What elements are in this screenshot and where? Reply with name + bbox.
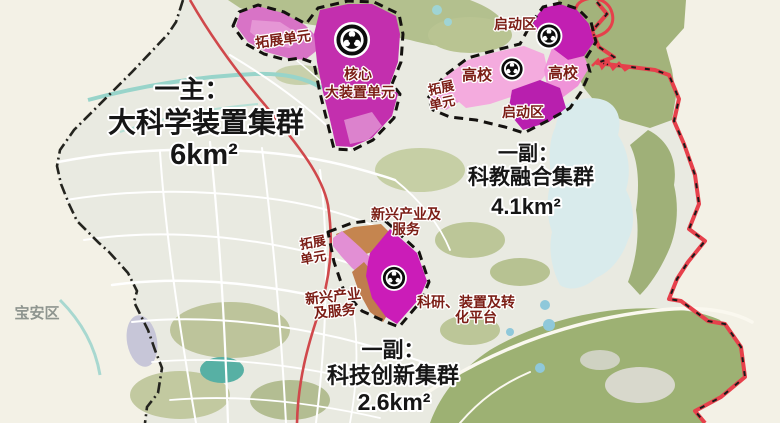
pond	[444, 18, 452, 26]
forest-patch	[170, 302, 290, 358]
science-device-icon	[500, 57, 523, 80]
title-ne-name: 科教融合集群	[468, 165, 594, 189]
zone-label-industry-north-line1: 新兴产业及	[371, 206, 442, 222]
district-label-baoan: 宝安区	[14, 304, 59, 322]
zone-label-university-west: 高校	[462, 66, 493, 84]
pond	[540, 300, 550, 310]
zone-label-industry-north-line2: 服务	[392, 221, 421, 237]
title-south-prefix: 一副：	[362, 339, 425, 362]
title-ne-prefix: 一副：	[498, 142, 558, 165]
zone-label-core-line1: 核心	[344, 66, 372, 82]
pond	[506, 328, 514, 336]
title-main-area: 6km²	[170, 139, 238, 171]
zone-label-startup-south: 启动区	[502, 104, 544, 120]
forest-patch	[375, 148, 465, 192]
science-device-icon	[335, 23, 369, 57]
pond	[535, 363, 545, 373]
title-main-prefix: 一主：	[154, 76, 229, 104]
zone-label-platform-line2: 化平台	[455, 309, 497, 325]
zone-label-startup-top: 启动区	[494, 16, 536, 32]
zone-label-core-line2: 大装置单元	[325, 84, 395, 100]
title-south-area: 2.6km²	[358, 389, 431, 415]
science-device-icon	[537, 24, 562, 49]
zone-label-platform-line1: 科研、装置及转	[417, 294, 515, 310]
science-device-icon	[382, 266, 406, 290]
planning-map: 拓展单元 核心 大装置单元 启动区 高校 高校 启动区 拓展 单元	[0, 0, 780, 423]
title-south-name: 科技创新集群	[327, 363, 459, 388]
forest-clearing	[605, 367, 675, 403]
forest-clearing	[580, 350, 620, 370]
pond	[432, 5, 442, 15]
forest-patch	[490, 258, 550, 286]
pond	[543, 319, 555, 331]
title-main-name: 大科学装置集群	[108, 106, 304, 138]
map-canvas: 拓展单元 核心 大装置单元 启动区 高校 高校 启动区 拓展 单元	[0, 0, 780, 423]
title-ne-area: 4.1km²	[491, 194, 561, 219]
zone-label-university-east: 高校	[548, 64, 579, 82]
